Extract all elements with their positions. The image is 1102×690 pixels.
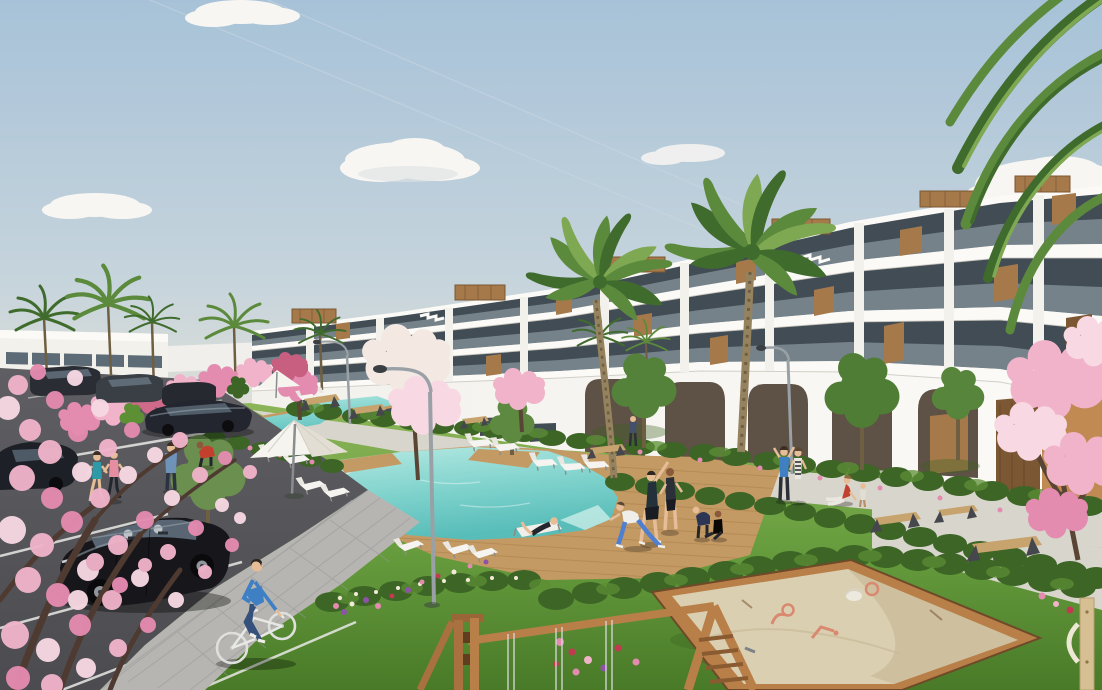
architectural-render: New-build residential complex — exterior… (0, 0, 1102, 690)
scene-canvas: New-build residential complex — exterior… (0, 0, 1102, 690)
